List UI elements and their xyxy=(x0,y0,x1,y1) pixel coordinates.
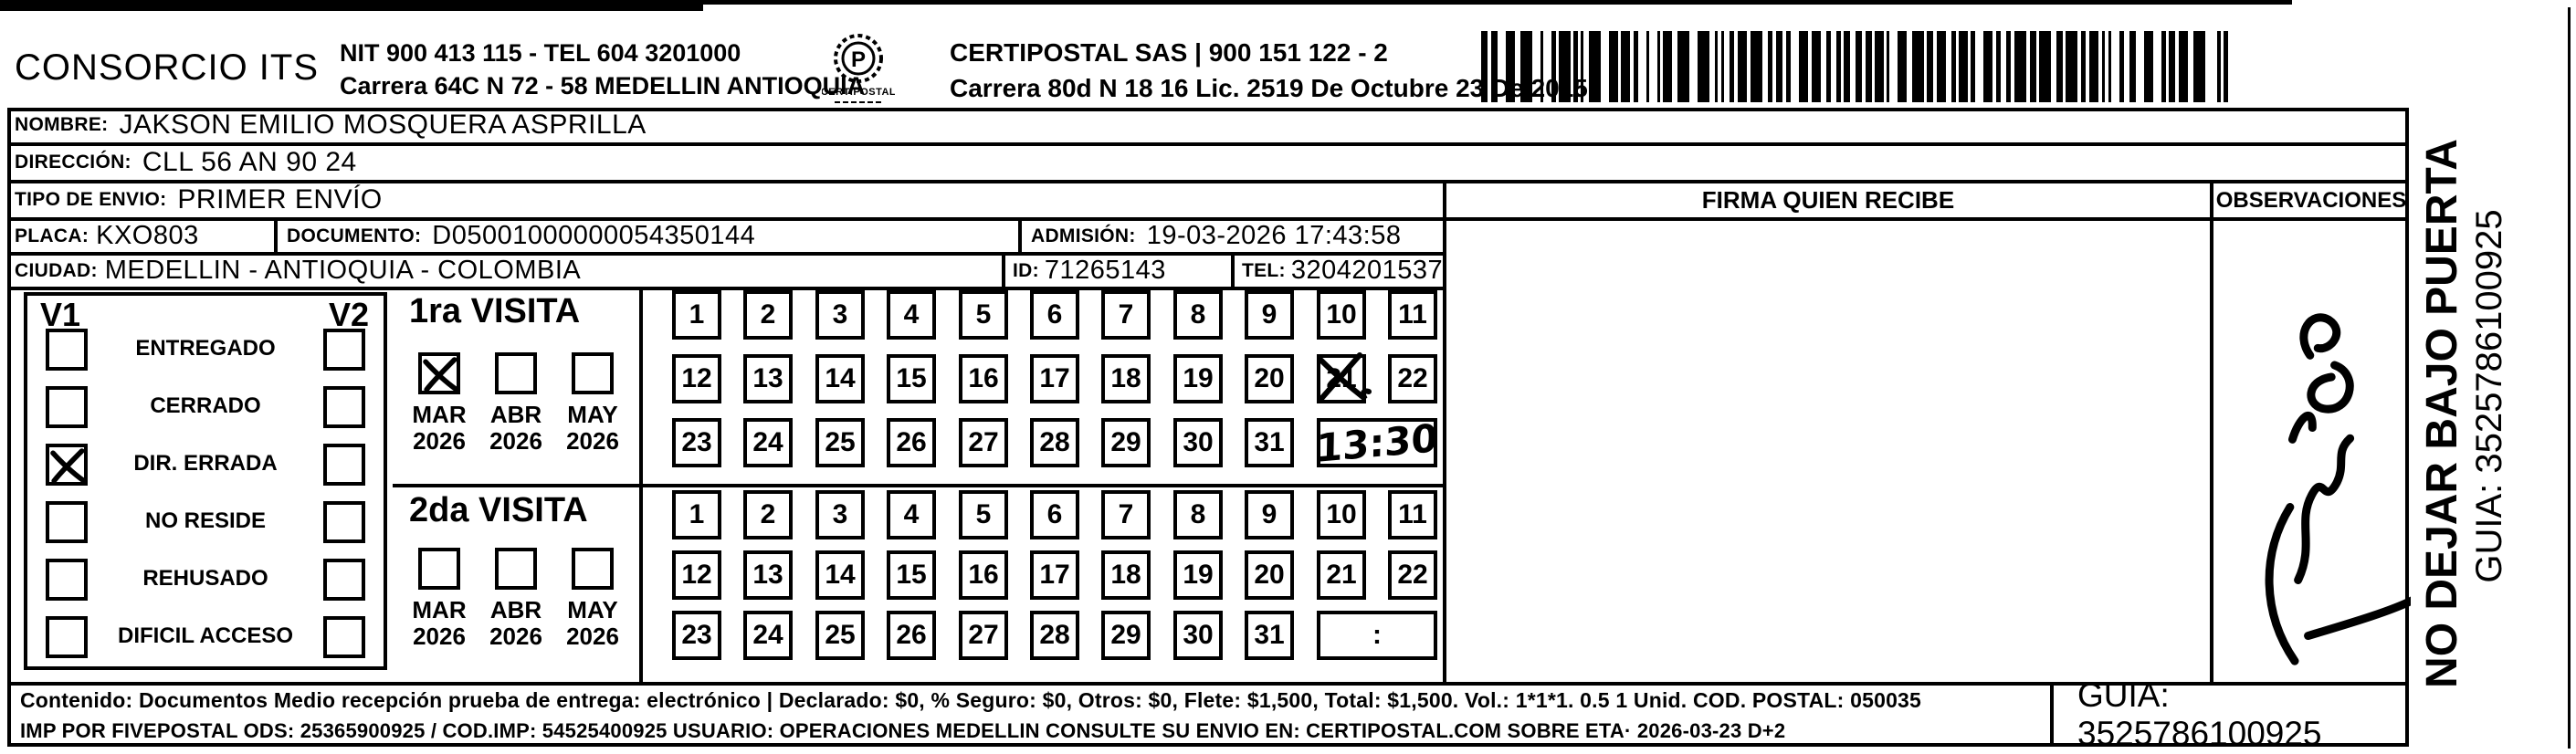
month-year-label: 2026 xyxy=(489,623,542,650)
rule xyxy=(1018,217,1022,256)
month-item-mar-visit1: MAR2026 xyxy=(405,352,473,455)
day-box-visit2-31[interactable]: 31 xyxy=(1245,611,1294,660)
day-box-visit1-8[interactable]: 8 xyxy=(1173,290,1223,340)
rule xyxy=(2210,180,2213,686)
month-checkbox-mar-visit2[interactable] xyxy=(418,548,460,590)
month-checkbox-may-visit2[interactable] xyxy=(572,548,614,590)
admision-label: ADMISIÓN: xyxy=(1031,225,1136,247)
day-box-visit2-6[interactable]: 6 xyxy=(1030,490,1079,539)
day-box-visit2-5[interactable]: 5 xyxy=(959,490,1008,539)
day-box-visit2-30[interactable]: 30 xyxy=(1173,611,1223,660)
month-label: MAR xyxy=(412,597,466,623)
cell-tel: TEL: 3204201537 xyxy=(1242,255,1443,287)
status-panel: V1 V2 ENTREGADOCERRADODIR. ERRADANO RESI… xyxy=(24,292,387,670)
tel-label: TEL: xyxy=(1242,260,1286,282)
status-checkbox-v2-rehusado[interactable] xyxy=(323,559,365,601)
firma-signature-area[interactable] xyxy=(1446,221,2210,682)
day-box-visit2-21[interactable]: 21 xyxy=(1317,550,1366,600)
month-label: ABR xyxy=(490,402,541,428)
day-box-visit2-20[interactable]: 20 xyxy=(1245,550,1294,600)
rule xyxy=(393,484,1446,487)
month-label: ABR xyxy=(490,597,541,623)
day-box-visit1-5[interactable]: 5 xyxy=(959,290,1008,340)
day-box-visit1-20[interactable]: 20 xyxy=(1245,354,1294,403)
month-checkbox-may-visit1[interactable] xyxy=(572,352,614,394)
day-box-visit1-25[interactable]: 25 xyxy=(815,418,865,467)
month-year-label: 2026 xyxy=(413,428,466,455)
month-item-may-visit2: MAY2026 xyxy=(559,548,626,650)
row-tipo-envio: TIPO DE ENVIO: PRIMER ENVÍO xyxy=(15,183,383,217)
month-item-mar-visit2: MAR2026 xyxy=(405,548,473,650)
day-box-visit2-7[interactable]: 7 xyxy=(1101,490,1151,539)
day-box-visit2-28[interactable]: 28 xyxy=(1030,611,1079,660)
day-box-visit2-2[interactable]: 2 xyxy=(743,490,793,539)
day-box-visit2-17[interactable]: 17 xyxy=(1030,550,1079,600)
tipo-envio-label: TIPO DE ENVIO: xyxy=(15,189,166,211)
handwritten-observation-scribble xyxy=(2219,269,2411,671)
delivery-receipt-scan: CONSORCIO ITS NIT 900 413 115 - TEL 604 … xyxy=(0,0,2576,754)
admision-value: 19-03-2026 17:43:58 xyxy=(1147,221,1402,251)
rule xyxy=(1231,252,1235,290)
placa-label: PLACA: xyxy=(15,225,89,247)
status-label-dificil-acceso: DIFICIL ACCESO xyxy=(88,623,323,649)
day-box-visit2-22[interactable]: 22 xyxy=(1388,550,1437,600)
company-nit: NIT 900 413 115 - TEL 604 3201000 xyxy=(340,37,865,69)
side-guia-text: GUIA: 3525786100925 xyxy=(2469,177,2509,615)
svg-text:CERTIPOSTAL: CERTIPOSTAL xyxy=(822,87,895,98)
day-box-visit2-29[interactable]: 29 xyxy=(1101,611,1151,660)
certipostal-logo-icon: P CERTIPOSTAL xyxy=(822,31,895,110)
day-box-visit1-2[interactable]: 2 xyxy=(743,290,793,340)
day-box-visit1-4[interactable]: 4 xyxy=(887,290,936,340)
time-placeholder-colon: : xyxy=(1372,620,1382,651)
month-label: MAY xyxy=(567,402,617,428)
day-box-visit1-21[interactable]: 21 xyxy=(1317,354,1366,403)
visit2-months: MAR2026ABR2026MAY2026 xyxy=(405,548,626,650)
footer-terms: Contenido: Documentos Medio recepción pr… xyxy=(20,686,1921,746)
day-box-visit2-23[interactable]: 23 xyxy=(672,611,721,660)
day-box-visit1-28[interactable]: 28 xyxy=(1030,418,1079,467)
month-label: MAR xyxy=(412,402,466,428)
status-checkbox-v1-dificil-acceso[interactable] xyxy=(46,616,88,658)
month-checkbox-mar-visit1[interactable] xyxy=(418,352,460,394)
month-year-label: 2026 xyxy=(566,428,619,455)
day-box-visit2-11[interactable]: 11 xyxy=(1388,490,1437,539)
day-box-visit1-3[interactable]: 3 xyxy=(815,290,865,340)
day-box-visit1-9[interactable]: 9 xyxy=(1245,290,1294,340)
rule xyxy=(7,142,2409,146)
cell-admision: ADMISIÓN: 19-03-2026 17:43:58 xyxy=(1031,220,1402,252)
month-year-label: 2026 xyxy=(566,623,619,650)
status-checkbox-v2-entregado[interactable] xyxy=(323,329,365,371)
id-value: 71265143 xyxy=(1045,256,1166,286)
month-item-may-visit1: MAY2026 xyxy=(559,352,626,455)
documento-label: DOCUMENTO: xyxy=(287,225,421,247)
placa-value: KXO803 xyxy=(96,221,199,251)
ciudad-value: MEDELLIN - ANTIOQUIA - COLOMBIA xyxy=(105,256,582,286)
rule xyxy=(274,217,278,256)
row-nombre: NOMBRE: JAKSON EMILIO MOSQUERA ASPRILLA xyxy=(15,108,647,142)
status-checkbox-v1-rehusado[interactable] xyxy=(46,559,88,601)
footer-line1: Contenido: Documentos Medio recepción pr… xyxy=(20,686,1921,716)
observaciones-header: OBSERVACIONES xyxy=(2213,183,2409,217)
day-box-visit1-7[interactable]: 7 xyxy=(1101,290,1151,340)
day-box-visit2-15[interactable]: 15 xyxy=(887,550,936,600)
page-right-edge xyxy=(2568,7,2571,749)
status-label-no-reside: NO RESIDE xyxy=(88,508,323,534)
status-label-entregado: ENTREGADO xyxy=(88,336,323,361)
day-box-visit1-27[interactable]: 27 xyxy=(959,418,1008,467)
tracking-barcode xyxy=(1481,31,2228,102)
status-checkbox-v2-dificil-acceso[interactable] xyxy=(323,616,365,658)
tel-value: 3204201537 xyxy=(1291,256,1443,286)
day-box-visit2-24[interactable]: 24 xyxy=(743,611,793,660)
day-box-visit1-14[interactable]: 14 xyxy=(815,354,865,403)
status-label-cerrado: CERRADO xyxy=(88,393,323,419)
status-label-dir-errada: DIR. ERRADA xyxy=(88,451,323,476)
day-box-visit1-1[interactable]: 1 xyxy=(672,290,721,340)
id-label: ID: xyxy=(1013,260,1039,282)
status-label-rehusado: REHUSADO xyxy=(88,566,323,592)
day-box-visit1-31[interactable]: 31 xyxy=(1245,418,1294,467)
month-item-abr-visit1: ABR2026 xyxy=(482,352,550,455)
day-box-visit2-16[interactable]: 16 xyxy=(959,550,1008,600)
top-bar-thick xyxy=(0,0,703,11)
day-box-visit1-19[interactable]: 19 xyxy=(1173,354,1223,403)
row-direccion: DIRECCIÓN: CLL 56 AN 90 24 xyxy=(15,145,357,180)
day-box-visit2-19[interactable]: 19 xyxy=(1173,550,1223,600)
status-checkbox-v2-cerrado[interactable] xyxy=(323,386,365,428)
time-box-visit1[interactable]: 13:30 xyxy=(1317,418,1437,467)
company-info: NIT 900 413 115 - TEL 604 3201000 Carrer… xyxy=(340,37,865,102)
month-year-label: 2026 xyxy=(489,428,542,455)
day-box-visit1-18[interactable]: 18 xyxy=(1101,354,1151,403)
day-box-visit1-10[interactable]: 10 xyxy=(1317,290,1366,340)
day-box-visit1-6[interactable]: 6 xyxy=(1030,290,1079,340)
day-box-visit1-30[interactable]: 30 xyxy=(1173,418,1223,467)
day-box-visit1-16[interactable]: 16 xyxy=(959,354,1008,403)
rule xyxy=(639,287,643,686)
status-checkbox-v1-dir-errada[interactable] xyxy=(46,444,88,486)
day-box-visit1-29[interactable]: 29 xyxy=(1101,418,1151,467)
day-box-visit2-27[interactable]: 27 xyxy=(959,611,1008,660)
visit2-title: 2da VISITA xyxy=(409,491,588,530)
month-label: MAY xyxy=(567,597,617,623)
footer-line2: IMP POR FIVEPOSTAL ODS: 25365900925 / CO… xyxy=(20,716,1921,746)
nombre-label: NOMBRE: xyxy=(15,114,108,136)
day-box-visit2-9[interactable]: 9 xyxy=(1245,490,1294,539)
direccion-value: CLL 56 AN 90 24 xyxy=(142,147,357,178)
day-box-visit2-18[interactable]: 18 xyxy=(1101,550,1151,600)
company-name: CONSORCIO ITS xyxy=(15,47,319,89)
day-box-visit2-14[interactable]: 14 xyxy=(815,550,865,600)
status-checkbox-v1-no-reside[interactable] xyxy=(46,501,88,543)
documento-value: D05001000000054350144 xyxy=(432,221,755,251)
day-box-visit2-10[interactable]: 10 xyxy=(1317,490,1366,539)
nombre-value: JAKSON EMILIO MOSQUERA ASPRILLA xyxy=(119,110,646,141)
day-box-visit1-17[interactable]: 17 xyxy=(1030,354,1079,403)
month-checkbox-abr-visit1[interactable] xyxy=(495,352,537,394)
day-box-visit2-1[interactable]: 1 xyxy=(672,490,721,539)
company-address: Carrera 64C N 72 - 58 MEDELLIN ANTIOQUIA xyxy=(340,69,865,102)
day-box-visit1-24[interactable]: 24 xyxy=(743,418,793,467)
status-checkbox-v2-dir-errada[interactable] xyxy=(323,444,365,486)
day-box-visit1-26[interactable]: 26 xyxy=(887,418,936,467)
day-box-visit2-3[interactable]: 3 xyxy=(815,490,865,539)
direccion-label: DIRECCIÓN: xyxy=(15,152,131,173)
top-bar-thin xyxy=(703,0,2292,5)
firma-quien-recibe-header: FIRMA QUIEN RECIBE xyxy=(1446,183,2210,217)
cell-documento: DOCUMENTO: D05001000000054350144 xyxy=(287,220,755,252)
day-box-visit1-22[interactable]: 22 xyxy=(1388,354,1437,403)
day-box-visit2-26[interactable]: 26 xyxy=(887,611,936,660)
day-box-visit2-13[interactable]: 13 xyxy=(743,550,793,600)
visit1-title: 1ra VISITA xyxy=(409,292,580,331)
day-box-visit1-15[interactable]: 15 xyxy=(887,354,936,403)
svg-text:P: P xyxy=(851,47,866,72)
day-box-visit1-12[interactable]: 12 xyxy=(672,354,721,403)
tipo-envio-value: PRIMER ENVÍO xyxy=(177,184,382,215)
cell-placa: PLACA: KXO803 xyxy=(15,220,199,252)
day-box-visit2-8[interactable]: 8 xyxy=(1173,490,1223,539)
guia-number-box: GUIA: 3525786100925 xyxy=(2054,682,2409,747)
status-checkbox-v2-no-reside[interactable] xyxy=(323,501,365,543)
time-box-visit2[interactable]: : xyxy=(1317,611,1437,660)
month-item-abr-visit2: ABR2026 xyxy=(482,548,550,650)
day-box-visit2-12[interactable]: 12 xyxy=(672,550,721,600)
month-year-label: 2026 xyxy=(413,623,466,650)
side-warning-text: NO DEJAR BAJO PUERTA xyxy=(2417,103,2466,724)
day-box-visit1-23[interactable]: 23 xyxy=(672,418,721,467)
visit1-months: MAR2026ABR2026MAY2026 xyxy=(405,352,626,455)
day-box-visit1-11[interactable]: 11 xyxy=(1388,290,1437,340)
day-box-visit2-4[interactable]: 4 xyxy=(887,490,936,539)
handwritten-time: 13:30 xyxy=(1316,415,1438,471)
status-checkbox-v1-entregado[interactable] xyxy=(46,329,88,371)
ciudad-label: CIUDAD: xyxy=(15,260,98,282)
month-checkbox-abr-visit2[interactable] xyxy=(495,548,537,590)
cell-id: ID: 71265143 xyxy=(1013,255,1166,287)
cell-ciudad: CIUDAD: MEDELLIN - ANTIOQUIA - COLOMBIA xyxy=(15,255,581,287)
rule xyxy=(1002,252,1005,290)
day-box-visit1-13[interactable]: 13 xyxy=(743,354,793,403)
day-box-visit2-25[interactable]: 25 xyxy=(815,611,865,660)
status-checkbox-v1-cerrado[interactable] xyxy=(46,386,88,428)
